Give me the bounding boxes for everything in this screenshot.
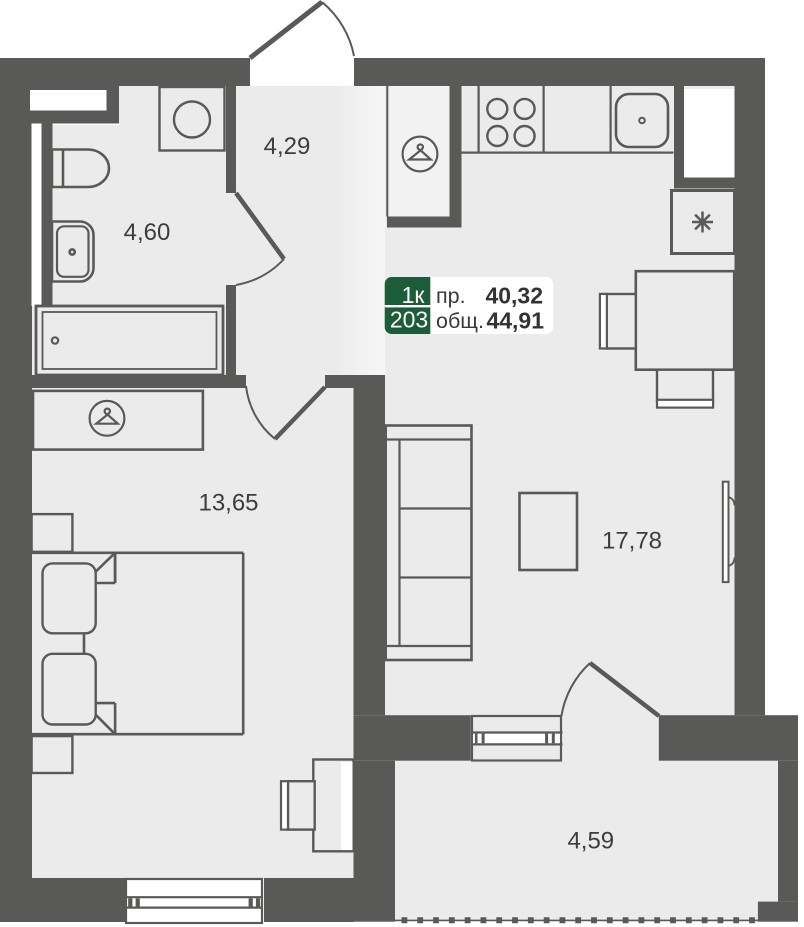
svg-text:4,29: 4,29: [264, 133, 311, 160]
svg-text:17,78: 17,78: [602, 528, 662, 555]
svg-text:1к: 1к: [402, 282, 426, 308]
svg-text:40,32: 40,32: [485, 283, 543, 309]
svg-text:4,59: 4,59: [567, 828, 614, 855]
svg-text:4,60: 4,60: [124, 219, 171, 246]
svg-text:общ.: общ.: [436, 309, 484, 333]
svg-text:203: 203: [390, 307, 428, 333]
svg-text:пр.: пр.: [436, 284, 466, 308]
svg-text:13,65: 13,65: [198, 490, 258, 517]
svg-text:44,91: 44,91: [486, 308, 544, 334]
